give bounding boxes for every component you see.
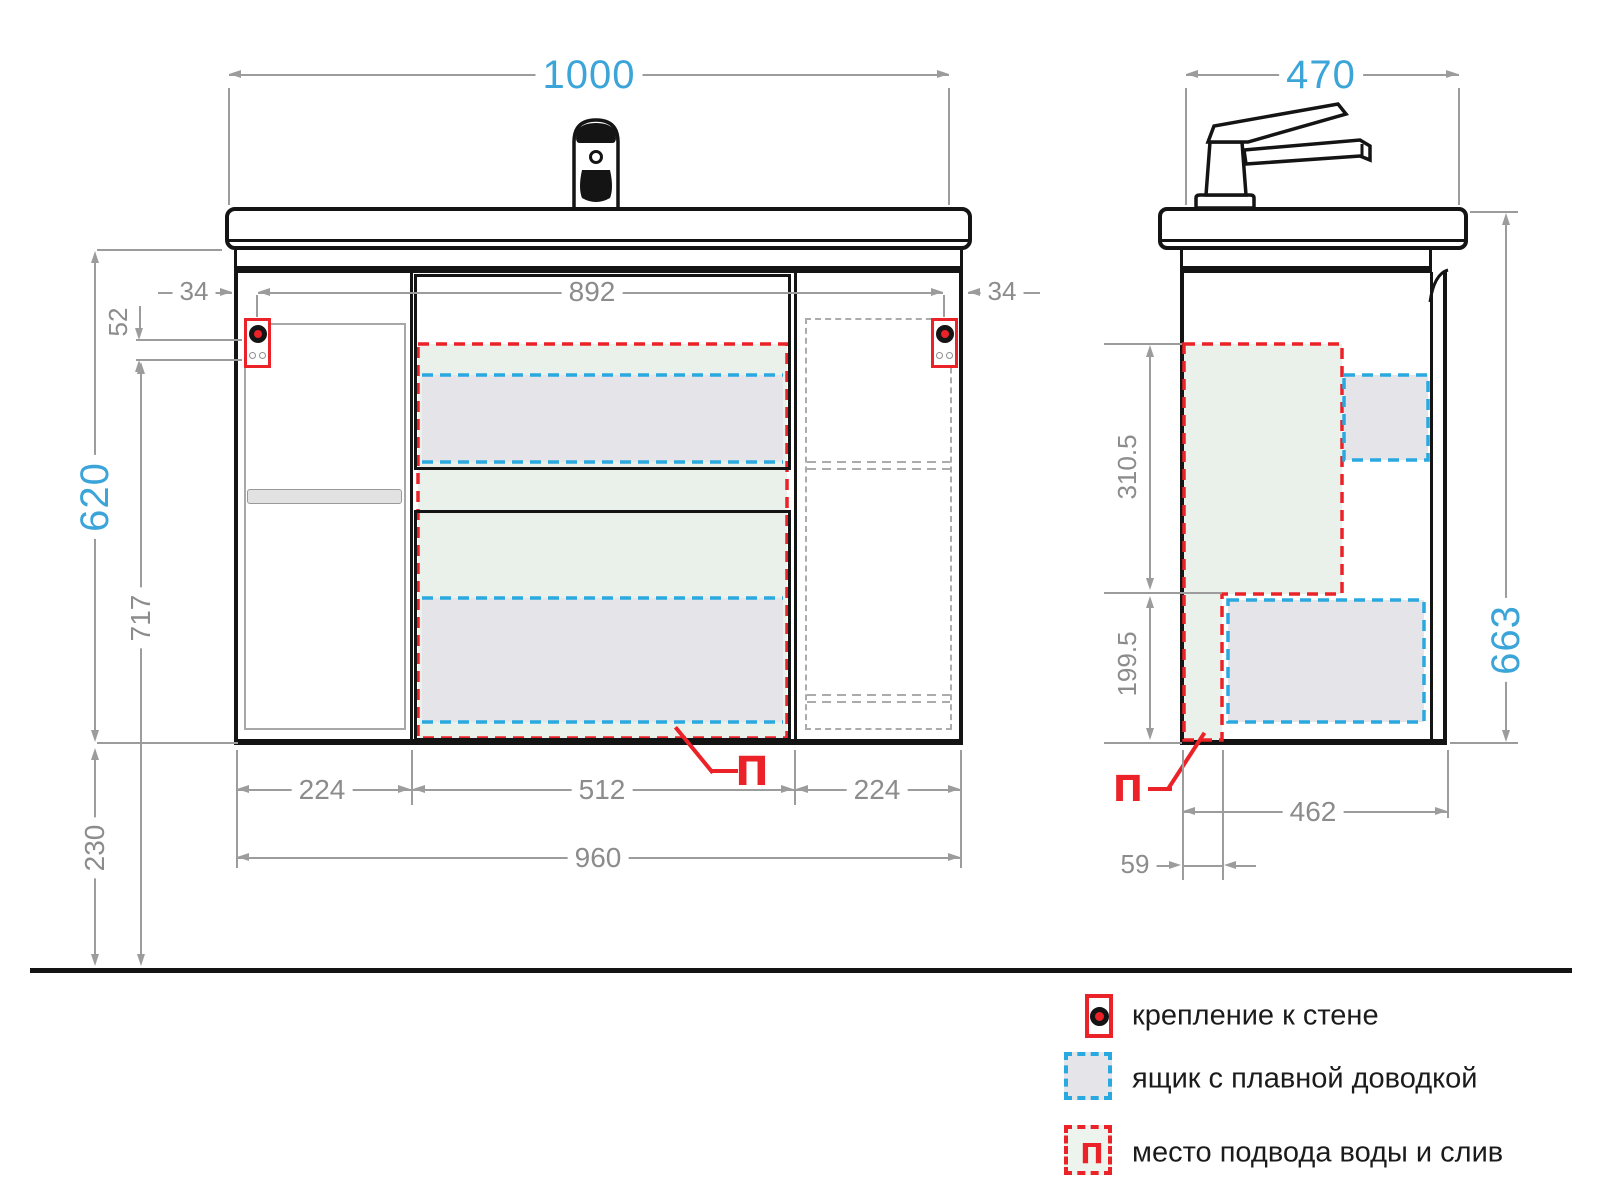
drawer-front-panel-2: [414, 510, 791, 741]
arrow: [1183, 807, 1195, 815]
sink-lip-line: [229, 239, 968, 242]
dim-total-depth-label: 470: [1279, 54, 1363, 96]
arrow: [1435, 807, 1447, 815]
arrow: [781, 785, 793, 793]
dim-bottom-right-label: 224: [847, 775, 908, 805]
legend-supply-glyph: П: [1080, 1140, 1103, 1168]
ext-line: [256, 295, 258, 317]
arrow: [137, 362, 145, 374]
dim-total-width-label: 1000: [536, 54, 643, 96]
arrow: [948, 853, 960, 861]
ext-line: [1185, 88, 1187, 205]
ext-line: [1450, 742, 1518, 744]
arrow: [258, 288, 270, 296]
ext-line: [411, 750, 413, 805]
supply-leader-horizontal: [710, 769, 738, 773]
wall-mount-icon: [1085, 994, 1113, 1038]
front-view: П 1000 34 892 34 52 620: [0, 0, 1050, 980]
dim-line: [1183, 865, 1222, 867]
faucet-front-icon: [558, 110, 634, 214]
arrow: [237, 853, 249, 861]
dim-line: [140, 374, 142, 956]
mount-bolt: [936, 325, 954, 343]
ext-line: [97, 742, 238, 744]
ext-line: [1458, 88, 1460, 205]
dim-mount-height-label: 717: [126, 588, 156, 649]
dim-mount-spacing-label: 52: [104, 301, 132, 344]
ext-line: [228, 88, 230, 205]
arrow: [413, 785, 425, 793]
arrow: [137, 954, 145, 966]
legend-item-label: ящик с плавной доводкой: [1132, 1065, 1478, 1094]
wall-mount-icon: [931, 318, 958, 368]
dim-line: [1149, 357, 1151, 582]
sink-skirt-side: [1180, 250, 1432, 270]
legend: крепление к стене ящик с плавной доводко…: [1050, 980, 1570, 1190]
dim-inner-width-label: 892: [562, 277, 623, 307]
arrow: [1146, 578, 1154, 590]
divider-left: [410, 270, 413, 745]
arrow-shaft: [1236, 865, 1256, 867]
right-door-shelf-dash: [807, 461, 950, 463]
drawer-2-depth-zone: [1228, 600, 1424, 722]
ext-line: [943, 295, 945, 317]
dim-zone-upper-label: 310.5: [1113, 427, 1141, 506]
arrow: [1502, 730, 1510, 742]
right-door-shelf-dash: [807, 694, 950, 696]
arrow: [91, 954, 99, 966]
arrow: [237, 785, 249, 793]
ext-line: [1104, 592, 1222, 594]
right-door-shelf-dash: [807, 468, 950, 470]
ext-line: [1104, 343, 1182, 345]
dim-floor-clearance-label: 230: [80, 818, 110, 879]
wall-mount-icon: [244, 318, 271, 368]
leader-line: [136, 339, 242, 341]
mount-hole: [259, 352, 266, 359]
dim-body-height-label: 620: [74, 455, 116, 539]
dim-total-height-label: 663: [1485, 598, 1527, 682]
water-supply-drain-icon: П: [1064, 1125, 1112, 1175]
sink-top-side: [1158, 207, 1468, 250]
side-door-top-curve: [1428, 266, 1450, 304]
ext-line: [1447, 750, 1449, 818]
arrow-shaft: [139, 306, 141, 328]
sink-top-front: [225, 207, 972, 250]
arrow: [1146, 728, 1154, 740]
dim-bottom-left-label: 224: [292, 775, 353, 805]
divider-right: [794, 270, 797, 745]
arrow: [91, 730, 99, 742]
dim-bottom-center-label: 512: [572, 775, 633, 805]
dim-bottom-total-label: 960: [568, 843, 629, 873]
ext-line: [1470, 211, 1518, 213]
dim-supply-offset-label: 59: [1114, 850, 1157, 878]
arrow: [229, 70, 241, 78]
legend-item-label: крепление к стене: [1132, 1002, 1379, 1031]
ext-line: [236, 750, 238, 868]
arrow: [135, 328, 143, 340]
arrow: [398, 785, 410, 793]
technical-drawing-canvas: П 1000 34 892 34 52 620: [0, 0, 1600, 1200]
dim-margin-left-label: 34: [173, 277, 216, 305]
arrow: [91, 251, 99, 263]
arrow: [1169, 861, 1181, 869]
mount-bolt: [1090, 1007, 1109, 1026]
ext-line: [794, 750, 796, 805]
sink-lip-line: [1162, 239, 1464, 242]
arrow: [796, 785, 808, 793]
side-door-panel: [1430, 272, 1447, 745]
sink-skirt-front: [234, 250, 963, 270]
dim-zone-lower-label: 199.5: [1113, 624, 1141, 703]
ext-line: [1182, 750, 1184, 880]
dim-bottom-depth-label: 462: [1283, 797, 1344, 827]
supply-label-side: П: [1113, 772, 1143, 808]
mount-bolt: [249, 325, 267, 343]
side-view: П 470 310.5 199.5 663 462: [1050, 0, 1600, 980]
dim-line: [1149, 608, 1151, 730]
arrow: [1224, 861, 1236, 869]
mount-hole: [249, 352, 256, 359]
arrow: [937, 70, 949, 78]
arrow: [1186, 70, 1198, 78]
arrow: [1502, 213, 1510, 225]
arrow: [948, 785, 960, 793]
legend-item-label: место подвода воды и слив: [1132, 1139, 1503, 1168]
arrow: [1146, 596, 1154, 608]
left-door-handle: [247, 489, 402, 504]
water-zone-and-drawers-side: [1180, 270, 1450, 750]
drawer-1-depth-zone: [1344, 375, 1428, 460]
arrow: [91, 748, 99, 760]
mount-hole: [936, 352, 943, 359]
ext-line: [1104, 742, 1182, 744]
arrow: [931, 288, 943, 296]
arrow: [1146, 345, 1154, 357]
ext-line: [960, 750, 962, 868]
dim-margin-right-label: 34: [981, 277, 1024, 305]
ext-line: [948, 88, 950, 205]
supply-leader-horizontal: [1148, 787, 1172, 791]
arrow: [1446, 70, 1458, 78]
soft-close-drawer-icon: [1064, 1052, 1112, 1100]
floor-line: [30, 968, 1572, 973]
left-door-outline: [244, 323, 406, 730]
arrow: [968, 288, 980, 296]
ext-line: [97, 249, 222, 251]
right-door-dashed-outline: [805, 318, 952, 730]
leader-line: [136, 359, 242, 361]
mount-hole: [946, 352, 953, 359]
supply-label-front: П: [735, 752, 768, 792]
faucet-side-icon: [1188, 96, 1388, 216]
arrow: [220, 288, 232, 296]
right-door-shelf-dash: [807, 701, 950, 703]
